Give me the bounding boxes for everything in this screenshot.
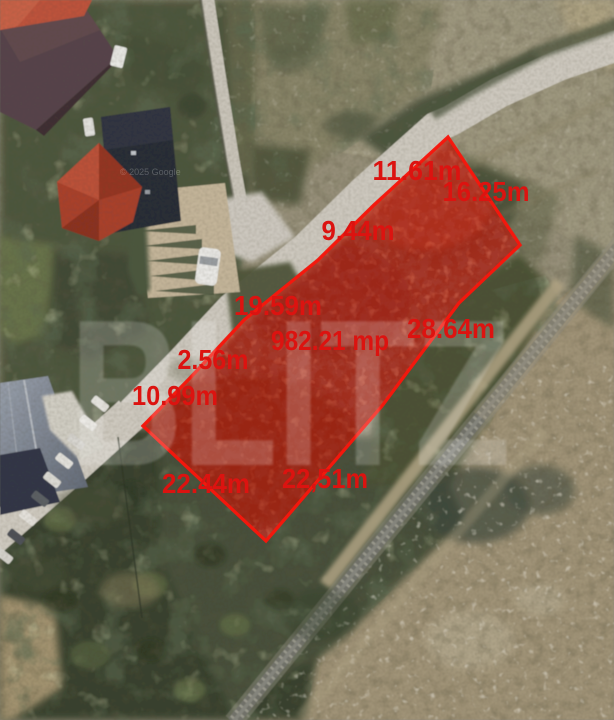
svg-text:10.99m: 10.99m	[132, 380, 218, 411]
svg-text:982.21 mp: 982.21 mp	[271, 325, 389, 356]
svg-text:19.59m: 19.59m	[234, 290, 322, 321]
svg-text:28.64m: 28.64m	[407, 313, 495, 344]
svg-text:9.44m: 9.44m	[322, 215, 395, 246]
svg-text:2.56m: 2.56m	[178, 344, 249, 375]
svg-text:22,51m: 22,51m	[282, 463, 368, 494]
svg-text:22.44m: 22.44m	[162, 468, 250, 499]
svg-text:© 2025 Google: © 2025 Google	[120, 167, 181, 177]
svg-text:16.25m: 16.25m	[443, 176, 530, 207]
